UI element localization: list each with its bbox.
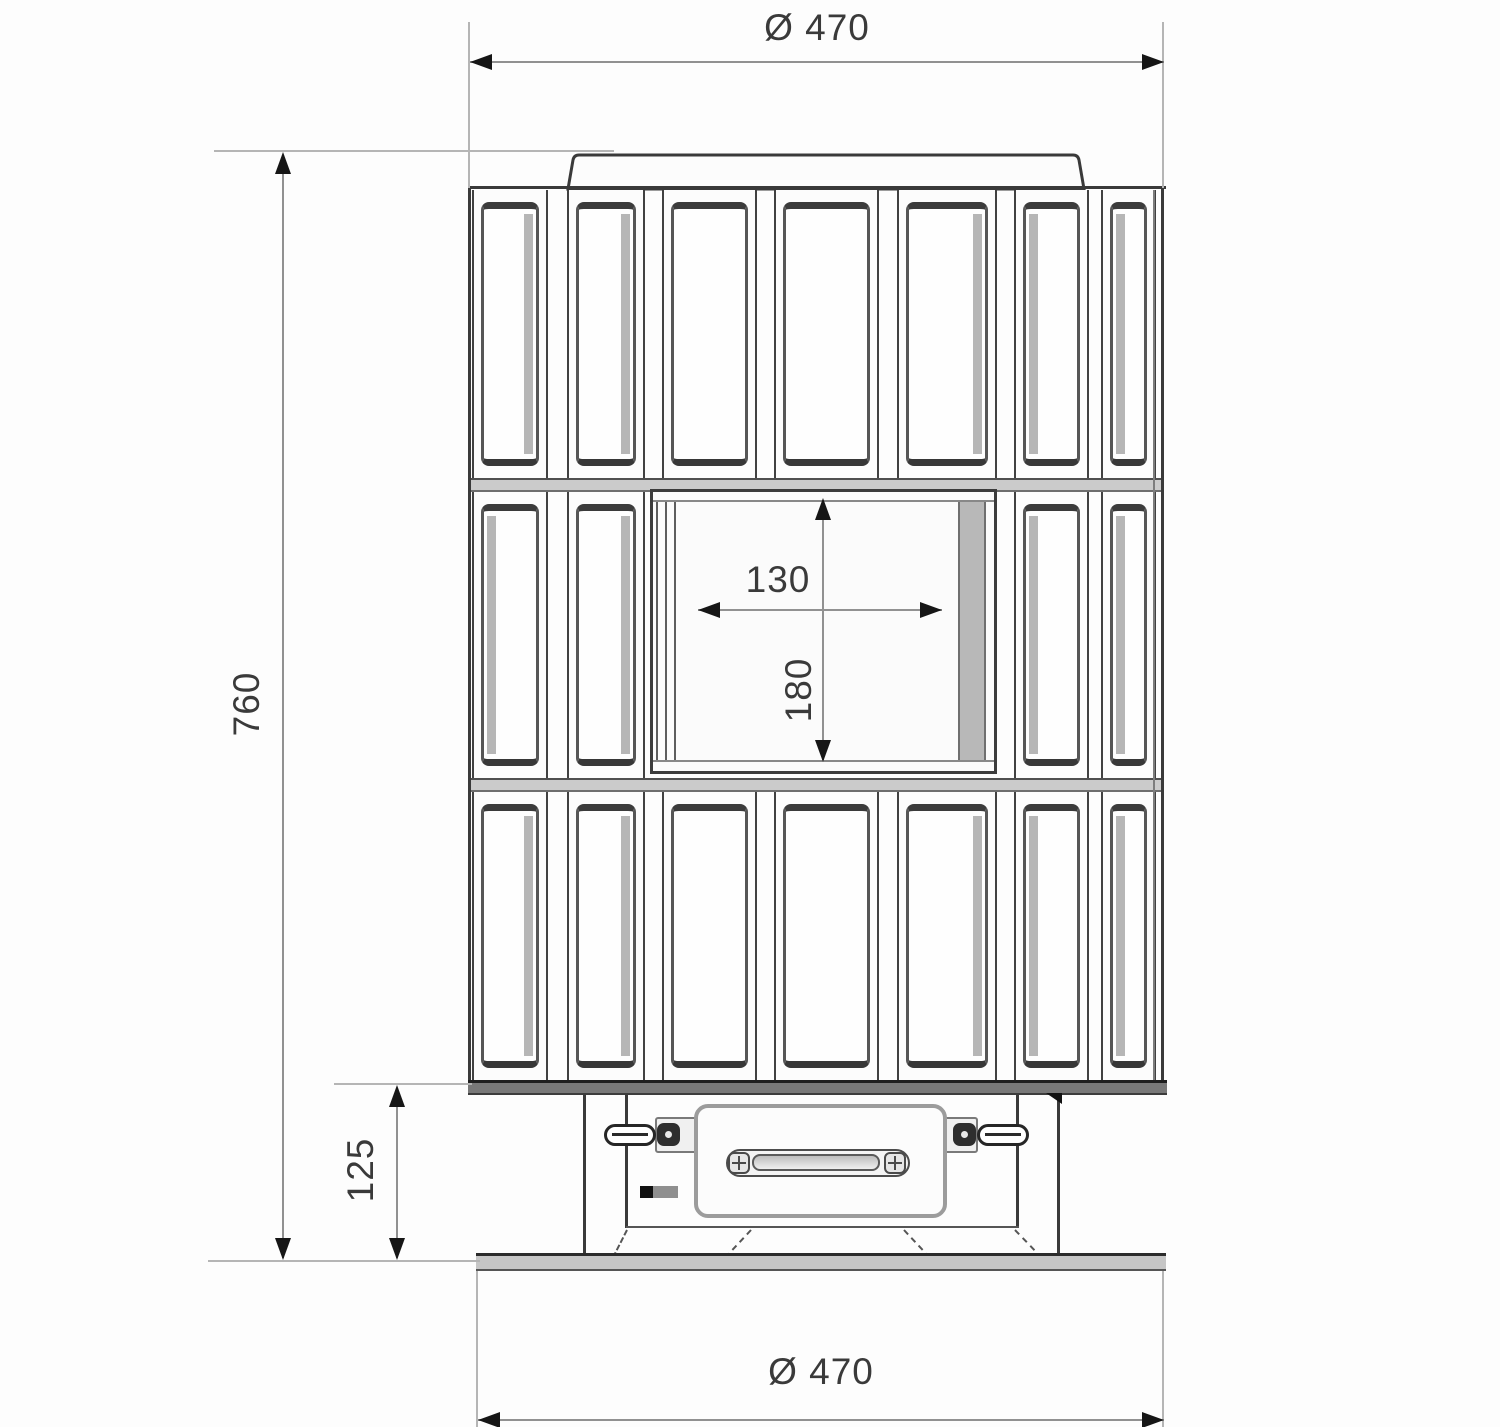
dim-label-bottom-diameter: Ø 470 xyxy=(478,1352,1164,1392)
body-right-inner-edge xyxy=(1153,190,1155,1080)
dimension-line-plinth-height xyxy=(396,1090,398,1258)
ceramic-tile xyxy=(472,792,548,1080)
vent-slot xyxy=(640,1186,678,1198)
pedestal-outer-wall-left xyxy=(583,1095,586,1255)
body-left-edge xyxy=(468,186,471,1082)
technical-drawing-tiled-stove: Ø 470 760 125 130 180 Ø 470 xyxy=(0,0,1500,1427)
ceramic-tile xyxy=(662,190,757,478)
dim-label-top-diameter: Ø 470 xyxy=(470,8,1164,48)
dimension-line-overall-height xyxy=(282,160,284,1258)
arrowhead xyxy=(275,152,291,174)
slider-screw-left xyxy=(728,1152,750,1174)
arrowhead xyxy=(815,498,831,520)
dimension-line-opening-height xyxy=(822,500,824,762)
ceramic-tile xyxy=(774,190,879,478)
body-right-edge xyxy=(1161,186,1164,1082)
slider-screw-right xyxy=(884,1152,906,1174)
dim-label-opening-height: 180 xyxy=(779,630,819,750)
ceramic-tile xyxy=(472,492,548,778)
dimension-line-top-diameter xyxy=(470,61,1164,63)
arrowhead xyxy=(389,1085,405,1107)
pedestal-outer-wall-right xyxy=(1057,1095,1060,1255)
arrowhead xyxy=(698,602,720,618)
arrowhead xyxy=(1142,1412,1164,1427)
ceramic-tile xyxy=(472,190,548,478)
ceramic-tile xyxy=(1101,792,1156,1080)
pedestal-face-bottom-line xyxy=(626,1226,1019,1228)
extension-line xyxy=(208,1260,480,1262)
ceramic-tile xyxy=(774,792,879,1080)
air-slider-handle xyxy=(752,1154,880,1171)
dim-label-overall-height: 760 xyxy=(227,644,267,764)
ceramic-tile xyxy=(662,792,757,1080)
ceramic-tile xyxy=(1014,792,1089,1080)
arrowhead xyxy=(389,1238,405,1260)
arrowhead xyxy=(1142,54,1164,70)
dim-label-opening-width: 130 xyxy=(718,560,838,600)
ceramic-tile xyxy=(1101,492,1156,778)
door-side-shading xyxy=(958,502,986,760)
arrowhead xyxy=(470,54,492,70)
base-plate xyxy=(476,1253,1166,1271)
extension-line xyxy=(214,150,614,152)
door-latch-lever-left xyxy=(604,1124,656,1146)
pedestal-inner-wall-left xyxy=(625,1095,628,1228)
ceramic-tile xyxy=(1014,190,1089,478)
plate-weld-mark xyxy=(1046,1093,1062,1104)
tile-joint-band xyxy=(470,778,1164,792)
dimension-line-opening-width xyxy=(698,609,942,611)
extension-line xyxy=(1162,1271,1164,1427)
arrowhead xyxy=(920,602,942,618)
ceramic-tile xyxy=(567,792,645,1080)
ceramic-tile xyxy=(1101,190,1156,478)
body-bottom-plate xyxy=(468,1080,1167,1095)
door-latch-lever-right xyxy=(977,1124,1029,1146)
ceramic-tile xyxy=(1014,492,1089,778)
ceramic-tile xyxy=(567,190,645,478)
dimension-line-bottom-diameter xyxy=(478,1419,1164,1421)
body-top-edge xyxy=(468,186,1166,189)
ceramic-tile xyxy=(897,190,997,478)
pedestal-inner-wall-right xyxy=(1016,1095,1019,1228)
dim-label-plinth-height: 125 xyxy=(341,1110,381,1230)
door-hinge-frame-lines xyxy=(656,502,683,760)
latch-knob-left xyxy=(657,1123,680,1146)
ceramic-tile xyxy=(897,792,997,1080)
ceramic-tile xyxy=(567,492,645,778)
extension-line xyxy=(476,1271,478,1427)
arrowhead xyxy=(478,1412,500,1427)
arrowhead xyxy=(275,1238,291,1260)
latch-knob-right xyxy=(953,1123,976,1146)
